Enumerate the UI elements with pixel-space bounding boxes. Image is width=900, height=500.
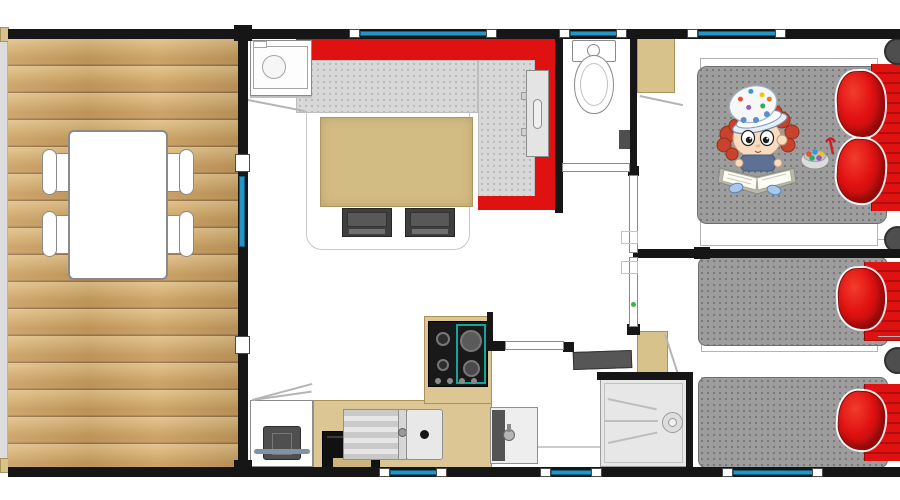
window-living — [360, 31, 487, 36]
hob-burner-small — [437, 359, 449, 371]
window-latch — [540, 468, 551, 477]
window-latch — [616, 29, 627, 38]
refrigerator — [250, 400, 313, 467]
window-wc — [570, 31, 617, 36]
door-hinge-dot — [631, 302, 636, 307]
child-body — [741, 155, 775, 171]
stool-bar — [412, 229, 448, 234]
radiator-shelf — [573, 350, 633, 370]
sofa-armrest-bottom — [478, 196, 557, 210]
basin-faucet-stem — [507, 424, 511, 432]
reading-child-illustration — [712, 82, 837, 200]
hob-teal-frame — [456, 324, 486, 384]
wall-post — [694, 247, 710, 259]
window-latch — [687, 29, 698, 38]
stool — [405, 208, 455, 237]
sink-drainer — [343, 409, 399, 460]
wall-wc-left — [555, 39, 563, 213]
hob-knob — [471, 378, 477, 384]
sink-drain — [420, 430, 429, 439]
deck-chair-backrest — [42, 149, 57, 195]
toilet-bowl-inner — [580, 63, 608, 106]
stool-seat — [410, 212, 450, 227]
door-bathroom — [505, 341, 564, 350]
wall-bedroom-divider — [633, 249, 900, 258]
wall-bath-top — [563, 342, 574, 352]
window-latch — [379, 468, 390, 477]
wall-heater-slot — [533, 99, 542, 129]
stool-bar — [349, 229, 385, 234]
window-latch — [722, 468, 733, 477]
door-wc — [562, 163, 630, 172]
wall-heater-tab — [521, 128, 527, 136]
hob-knob — [459, 378, 465, 384]
sofa-backrest-top — [296, 38, 557, 60]
sofa-seat-top — [296, 60, 478, 113]
hob-knob — [435, 378, 441, 384]
frame-tick — [878, 336, 900, 337]
wall-deck-living — [238, 29, 248, 467]
window-latch — [812, 468, 823, 477]
window-latch — [591, 468, 602, 477]
gas-hob — [428, 321, 488, 387]
deck-chair-backrest — [179, 149, 194, 195]
floor-plan — [0, 0, 900, 500]
refrigerator-handle — [254, 449, 310, 454]
window-bathroom — [551, 470, 592, 475]
window-latch — [349, 29, 360, 38]
candy-bowl — [801, 139, 835, 170]
deck-chair-backrest — [42, 211, 57, 257]
wall-wc-right — [630, 39, 637, 168]
deck-edge-rail — [0, 39, 8, 467]
stool — [342, 208, 392, 237]
window-latch — [559, 29, 570, 38]
door-hinge-mark — [621, 231, 638, 244]
water-heater-cabinet — [250, 40, 312, 96]
window-twin-bedroom — [733, 470, 813, 475]
window-latch — [436, 468, 447, 477]
window-master-bedroom — [698, 31, 776, 36]
wardrobe — [637, 38, 675, 93]
deck-chair-backrest — [179, 211, 194, 257]
entrance-door — [239, 176, 245, 247]
stool-seat — [347, 212, 387, 227]
refrigerator-drawer — [263, 426, 301, 460]
wall-post — [234, 460, 252, 476]
window-latch — [486, 29, 497, 38]
pillow — [836, 267, 886, 330]
wall-heater-tab — [521, 92, 527, 100]
dining-table — [68, 130, 168, 280]
bathroom-cabinet — [637, 331, 668, 376]
wall-post — [492, 341, 505, 351]
window-kitchen — [390, 470, 437, 475]
wall-post — [234, 25, 252, 41]
entrance-door-hardware — [235, 336, 250, 354]
pillow — [835, 70, 886, 138]
wardrobe-swing-line — [640, 95, 683, 106]
water-heater-drum — [262, 55, 286, 79]
bedside-stool — [884, 347, 900, 374]
entrance-door-hardware — [235, 154, 250, 172]
hob-knob — [447, 378, 453, 384]
water-heater-switch — [253, 41, 267, 48]
coffee-table — [320, 117, 473, 207]
window-latch — [775, 29, 786, 38]
bedside-stool — [884, 38, 900, 65]
shower-drain-center — [668, 418, 677, 427]
shower-spray-line — [604, 420, 658, 422]
wall-shower-top — [597, 372, 693, 380]
door-hinge-mark — [621, 261, 638, 274]
wall-shower-right — [686, 372, 693, 467]
hob-burner-small — [436, 332, 450, 346]
cabinet-shelf-line — [250, 96, 312, 98]
